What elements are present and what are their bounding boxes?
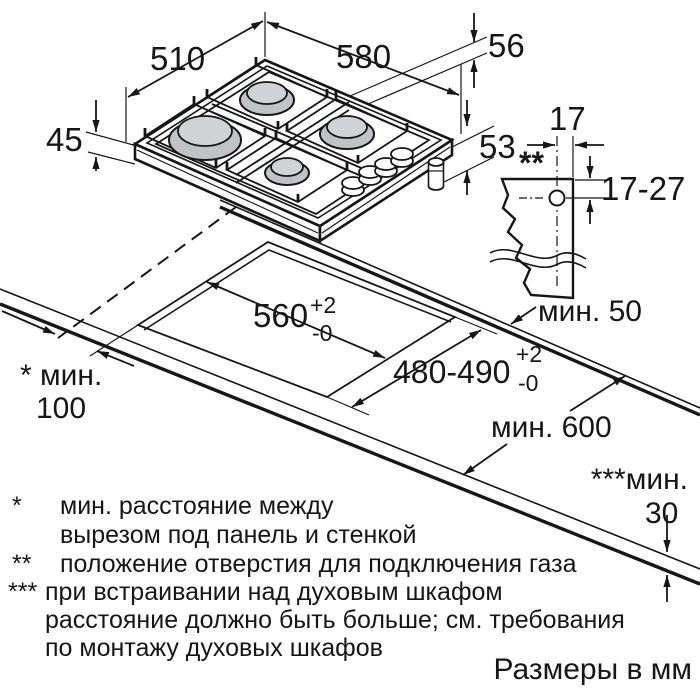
- footnote-marker-3: ***: [8, 578, 37, 606]
- worktop-depth-arrow-rear: [570, 376, 625, 411]
- footnote-3-line-2: расстояние должно быть больше; см. требо…: [45, 606, 625, 634]
- hole-offset-label: 17: [549, 100, 586, 137]
- hob-side-gap-label: 53: [479, 128, 516, 165]
- cutout-width-label: 560: [253, 297, 308, 334]
- worktop-depth-arrow-front: [463, 444, 507, 475]
- cutout-depth-tol-minus: -0: [518, 370, 538, 396]
- worktop-depth-label: мин. 600: [491, 411, 612, 444]
- units-note: Размеры в мм: [493, 653, 692, 686]
- oven-clearance-label: ***мин.: [591, 463, 688, 496]
- hob: [135, 57, 452, 241]
- hob-width-label: 580: [336, 38, 391, 75]
- footnote-marker-1: *: [12, 492, 22, 520]
- hob-depth-label: 510: [150, 40, 205, 77]
- knob-4: [391, 148, 413, 167]
- footnote-1-line-1: мин. расстояние между: [60, 492, 334, 520]
- rear-clearance-leader: [511, 307, 536, 324]
- hob-rear-gap-label: 56: [488, 27, 525, 64]
- side-clearance-value: 100: [36, 392, 86, 425]
- footnotes: * мин. расстояние между вырезом под пане…: [8, 492, 692, 686]
- hole-depth-range-label: 17-27: [601, 170, 685, 207]
- footnote-3-line-1: при встраивании над духовым шкафом: [45, 578, 503, 606]
- side-clearance-label: * мин.: [20, 359, 102, 392]
- cutout-width-tol-minus: -0: [312, 320, 332, 346]
- cutout-depth-tol-plus: +2: [516, 341, 542, 367]
- hob-height-label: 45: [46, 121, 83, 158]
- detail-marker: **: [519, 145, 544, 181]
- gas-hole: [550, 191, 565, 206]
- installation-diagram: 510 580 56 45 53 17 17-27 ** мин. 50: [0, 0, 700, 700]
- oven-clearance-value: 30: [645, 497, 678, 530]
- cutout-depth-label: 480-490: [393, 354, 510, 390]
- diagram-canvas: 510 580 56 45 53 17 17-27 ** мин. 50: [0, 0, 700, 700]
- gas-pipe: [429, 158, 444, 190]
- side-clearance-arrow-cutout: [97, 351, 134, 366]
- footnote-2-line-1: положение отверстия для подключения газа: [60, 550, 577, 578]
- footnote-marker-2: **: [12, 550, 32, 578]
- rear-clearance-label: мин. 50: [538, 295, 642, 328]
- cutout-width-tol-plus: +2: [310, 292, 336, 318]
- footnote-1-line-2: вырезом под панель и стенкой: [60, 521, 416, 549]
- footnote-3-line-3: по монтажу духовых шкафов: [45, 634, 383, 662]
